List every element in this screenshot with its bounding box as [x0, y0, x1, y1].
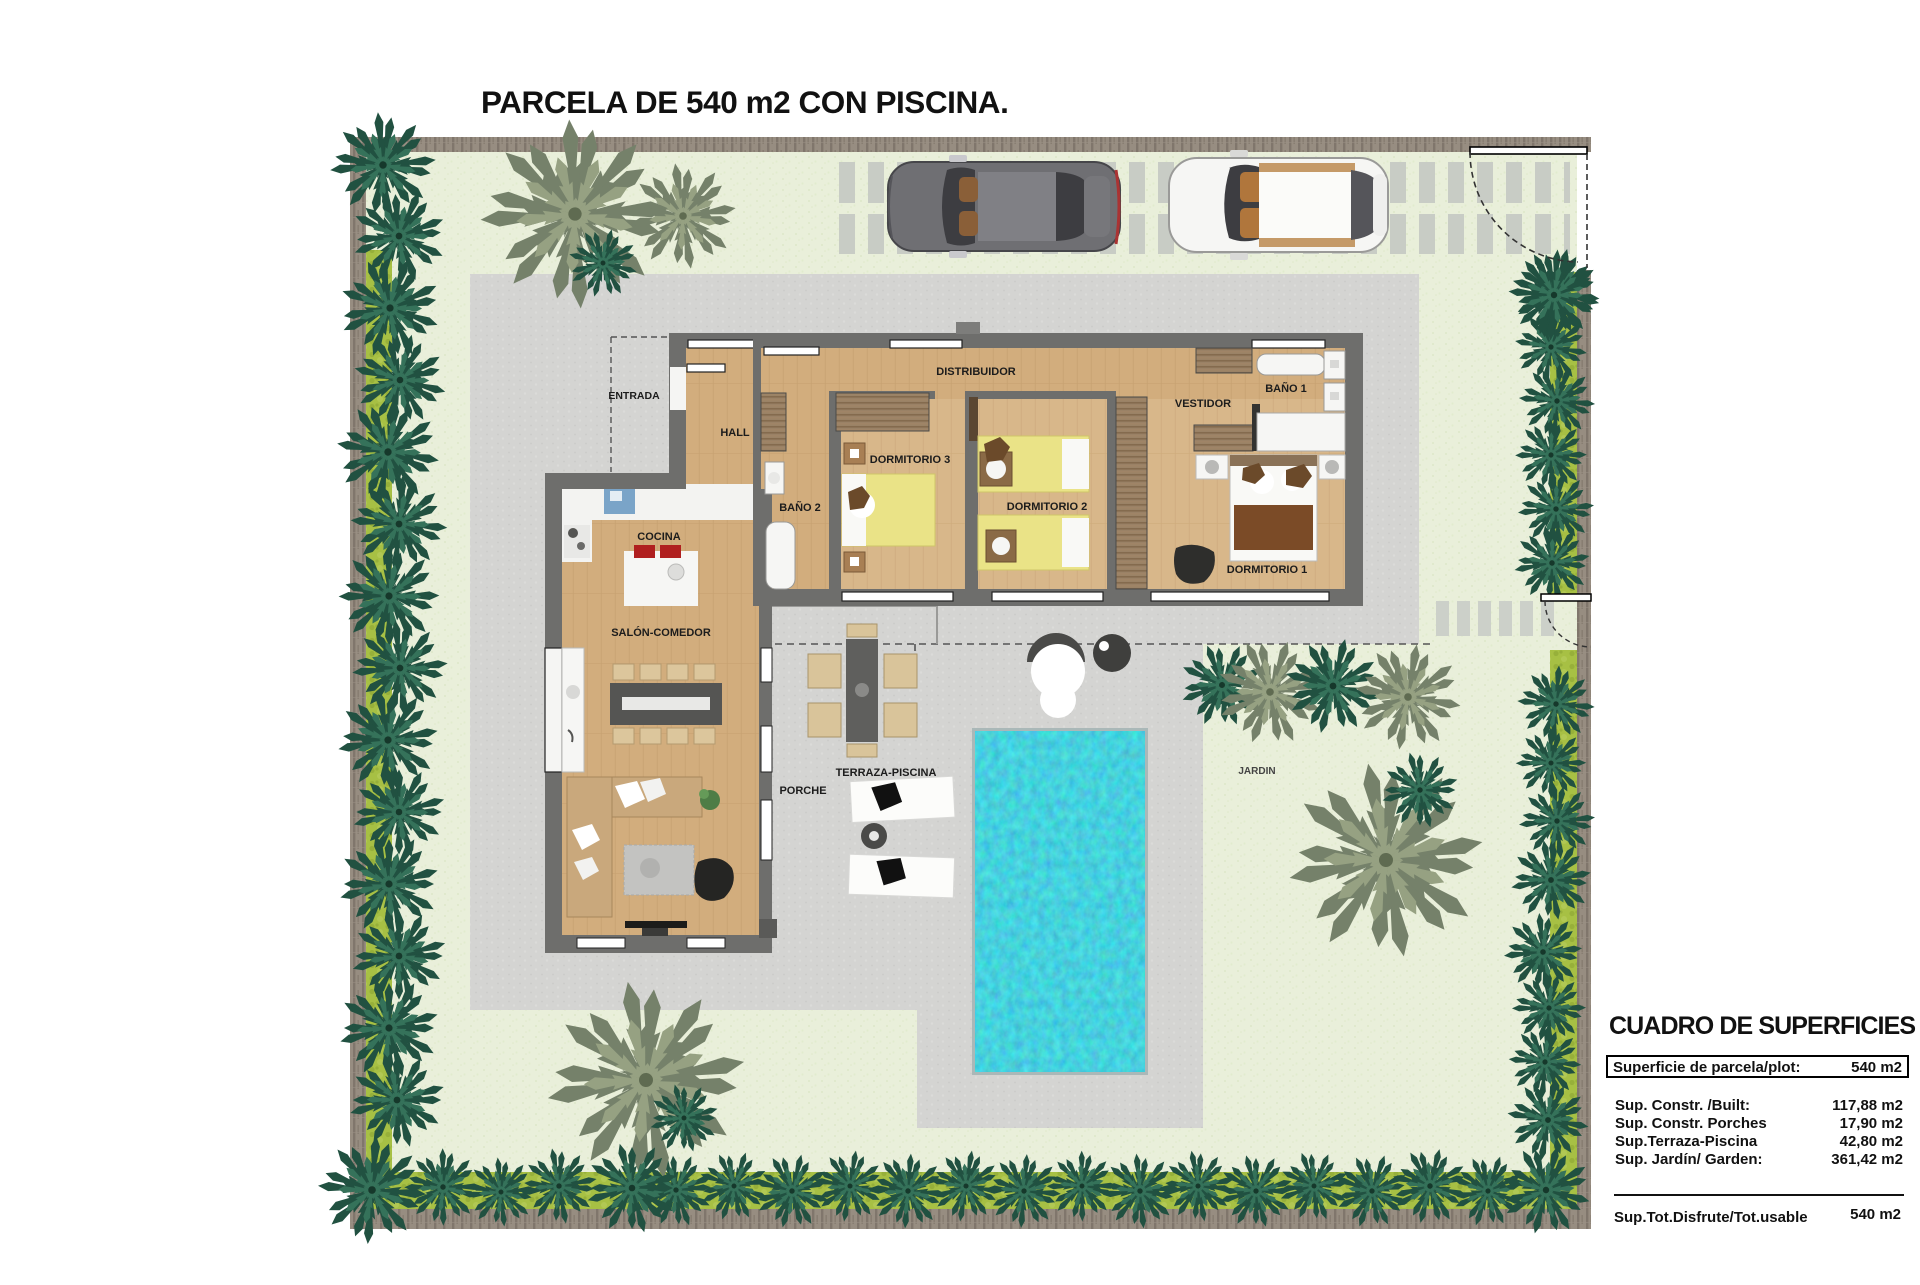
svg-text:117,88 m2: 117,88 m2 [1832, 1097, 1903, 1114]
svg-text:TERRAZA-PISCINA: TERRAZA-PISCINA [836, 767, 937, 779]
svg-text:HALL: HALL [720, 427, 750, 439]
svg-text:17,90 m2: 17,90 m2 [1840, 1115, 1903, 1132]
svg-text:JARDIN: JARDIN [1238, 766, 1275, 777]
svg-text:PARCELA DE 540 m2 CON PISCINA.: PARCELA DE 540 m2 CON PISCINA. [481, 84, 1008, 120]
svg-text:PORCHE: PORCHE [779, 785, 826, 797]
svg-text:SALÓN-COMEDOR: SALÓN-COMEDOR [611, 626, 711, 639]
svg-text:DORMITORIO 3: DORMITORIO 3 [870, 454, 950, 466]
svg-text:361,42 m2: 361,42 m2 [1831, 1151, 1903, 1168]
svg-text:COCINA: COCINA [637, 531, 680, 543]
svg-text:VESTIDOR: VESTIDOR [1175, 398, 1231, 410]
svg-text:BAÑO 1: BAÑO 1 [1265, 382, 1307, 395]
svg-text:Sup. Constr. /Built:: Sup. Constr. /Built: [1615, 1097, 1750, 1114]
svg-text:42,80 m2: 42,80 m2 [1840, 1133, 1903, 1150]
svg-text:DORMITORIO 2: DORMITORIO 2 [1007, 501, 1087, 513]
svg-text:Superficie de parcela/plot:: Superficie de parcela/plot: [1613, 1059, 1801, 1076]
svg-text:ENTRADA: ENTRADA [608, 390, 660, 402]
svg-text:540 m2: 540 m2 [1850, 1206, 1901, 1223]
svg-text:CUADRO DE SUPERFICIES: CUADRO DE SUPERFICIES [1609, 1012, 1915, 1040]
svg-text:BAÑO 2: BAÑO 2 [779, 501, 821, 514]
svg-text:Sup.Terraza-Piscina: Sup.Terraza-Piscina [1615, 1133, 1758, 1150]
svg-text:540 m2: 540 m2 [1851, 1059, 1902, 1076]
svg-text:Sup. Jardín/ Garden:: Sup. Jardín/ Garden: [1615, 1151, 1763, 1168]
svg-text:Sup.Tot.Disfrute/Tot.usable: Sup.Tot.Disfrute/Tot.usable [1614, 1209, 1808, 1226]
svg-text:DORMITORIO 1: DORMITORIO 1 [1227, 564, 1307, 576]
svg-text:Sup. Constr. Porches: Sup. Constr. Porches [1615, 1115, 1767, 1132]
svg-text:DISTRIBUIDOR: DISTRIBUIDOR [936, 366, 1016, 378]
